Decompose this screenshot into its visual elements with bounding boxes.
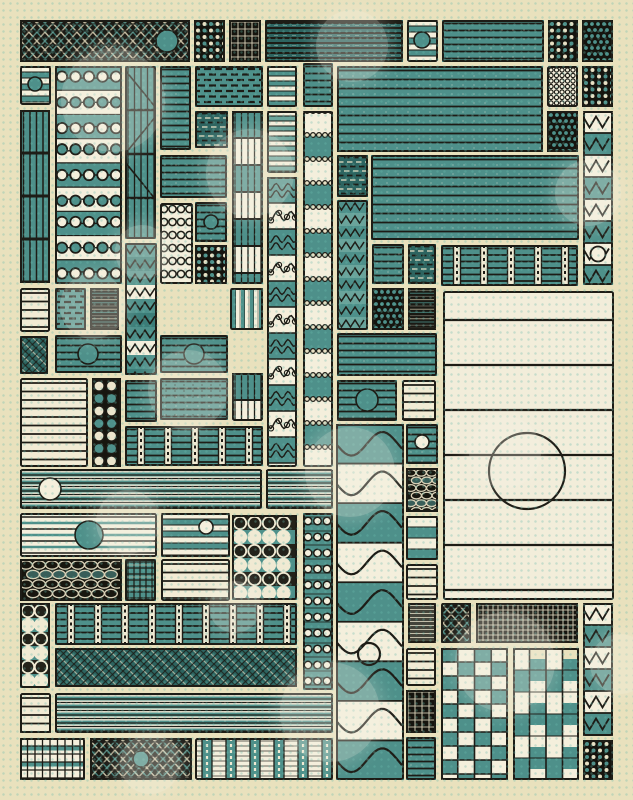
art-tile-chainC: [160, 203, 193, 284]
art-tile-weave: [90, 738, 192, 780]
art-tile-hl: [406, 737, 436, 780]
art-tile-hl: [160, 335, 228, 373]
art-tile-dots: [195, 245, 227, 284]
art-tile-hl: [337, 333, 437, 376]
art-tile-dots: [194, 20, 225, 62]
art-tile-zzr: [337, 200, 368, 330]
art-tile-hlc2: [20, 513, 157, 557]
art-tile-loops: [55, 66, 122, 284]
art-tile-beadgrid: [125, 426, 263, 466]
art-tile-gridD: [406, 690, 436, 733]
art-tile-static: [90, 288, 119, 330]
art-tile-vcurve: [125, 66, 156, 239]
art-tile-dw: [195, 66, 263, 107]
art-tile-hlc: [161, 559, 230, 601]
art-tile-wavyT: [125, 243, 157, 375]
art-tile-checker: [441, 648, 508, 780]
art-tile-stripesF: [55, 693, 333, 733]
art-tile-stripes: [407, 20, 438, 62]
art-tile-vlc: [230, 288, 263, 330]
art-tile-stripes: [267, 66, 297, 107]
art-tile-hl: [371, 155, 579, 240]
art-tile-hl: [337, 380, 397, 421]
art-tile-gridF: [20, 738, 85, 780]
art-tile-dwd: [408, 244, 436, 284]
art-tile-stripesF: [20, 469, 262, 509]
art-tile-dotsT: [372, 288, 404, 330]
art-tile-hlc: [406, 648, 436, 686]
art-tile-hl: [125, 380, 157, 422]
art-tile-grid: [125, 559, 156, 601]
art-tile-hl: [160, 155, 227, 198]
art-tile-hlc: [20, 288, 50, 332]
art-tile-bigrings: [20, 603, 50, 688]
art-tile-dotsT: [547, 111, 578, 152]
art-tile-panel: [443, 291, 614, 600]
art-tile-vgrid: [20, 110, 50, 283]
art-tile-vbead: [195, 738, 333, 780]
art-tile-hl: [372, 244, 404, 284]
art-tile-chaincol2: [303, 513, 333, 690]
art-tile-hl: [55, 335, 122, 373]
art-tile-hl: [303, 63, 333, 107]
art-tile-dotsC: [547, 66, 578, 107]
art-tile-hlc: [406, 564, 438, 600]
art-tile-zz: [583, 603, 613, 736]
art-tile-stripes: [406, 516, 438, 560]
art-tile-hl: [406, 424, 438, 464]
art-tile-ringsW: [406, 468, 438, 512]
art-tile-stripes: [161, 513, 230, 557]
art-tile-hlc: [20, 693, 51, 733]
art-tile-hlc: [402, 380, 436, 421]
art-tile-chaincol: [303, 111, 333, 467]
art-tile-dwd: [195, 111, 228, 148]
art-tile-dots: [548, 20, 578, 62]
art-tile-beadgrid: [55, 603, 297, 645]
art-tile-vseg: [232, 373, 263, 421]
art-tile-dots: [583, 740, 613, 780]
art-tile-statG: [408, 603, 436, 643]
art-tile-hl: [442, 20, 544, 62]
art-canvas: [0, 0, 633, 800]
art-tile-stripes: [267, 111, 297, 173]
art-tile-stripesF: [266, 469, 333, 509]
art-tile-hlc: [20, 378, 88, 467]
art-tile-hl: [160, 378, 228, 420]
art-tile-ringsW: [20, 559, 122, 601]
art-tile-weaveG: [55, 648, 297, 687]
art-tile-gridD: [476, 603, 578, 643]
art-tile-hld: [265, 20, 403, 62]
art-tile-dw: [55, 288, 86, 330]
art-tile-dots: [582, 66, 613, 107]
art-tile-hl: [337, 66, 543, 152]
art-tile-weaveG: [20, 336, 48, 374]
art-tile-hl: [195, 202, 227, 242]
art-tile-weave: [441, 603, 471, 643]
art-tile-sine: [336, 424, 404, 780]
art-tile-dotsT: [582, 20, 613, 62]
art-tile-vseg: [232, 111, 263, 284]
art-tile-gridD: [229, 20, 261, 62]
art-tile-weave: [20, 20, 190, 62]
art-tile-scallop: [267, 177, 297, 467]
art-tile-hl: [160, 66, 191, 150]
art-tile-beadgrid: [441, 245, 578, 286]
art-tile-static: [408, 288, 436, 330]
art-tile-stripes: [20, 66, 51, 105]
art-tile-bigrings: [232, 515, 297, 600]
art-tile-checker2: [513, 648, 579, 780]
art-tile-rings: [92, 378, 121, 467]
art-tile-dwd: [337, 155, 368, 197]
art-tile-zz: [583, 111, 613, 285]
